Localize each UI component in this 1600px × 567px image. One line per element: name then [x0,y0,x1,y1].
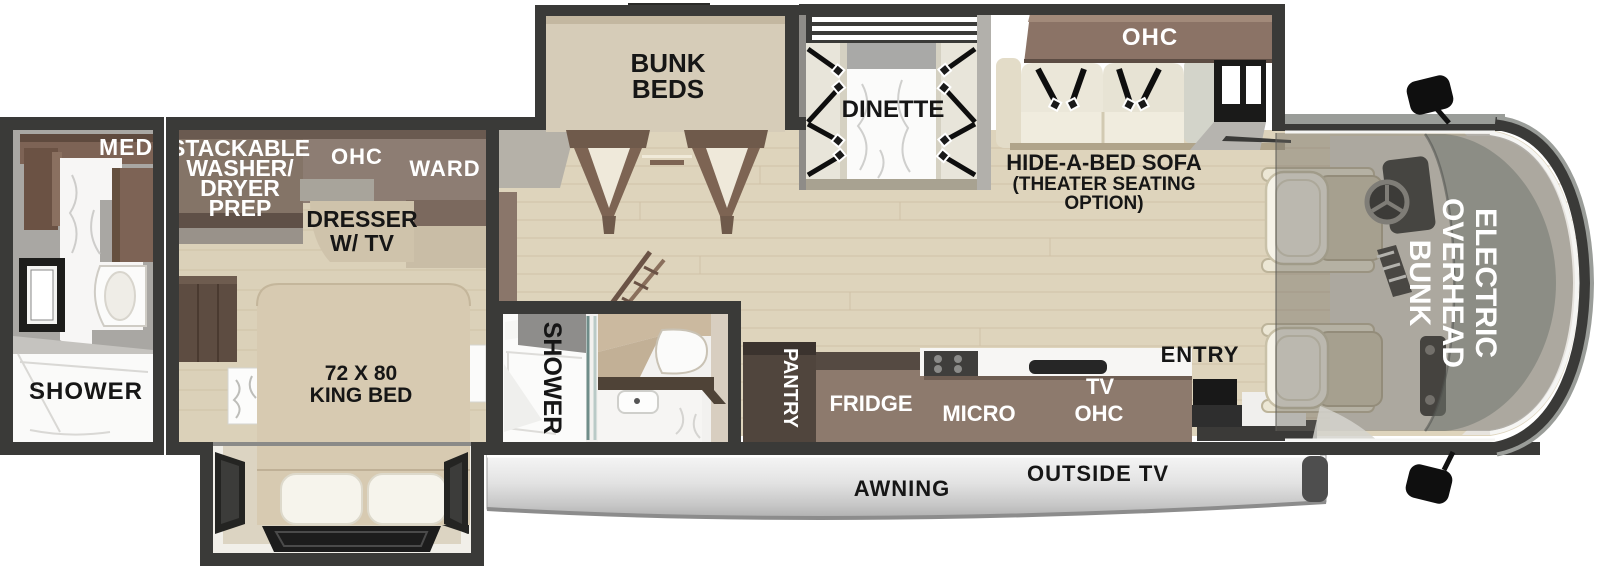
svg-text:PANTRY: PANTRY [779,348,801,429]
svg-text:MED: MED [99,134,153,160]
svg-text:W/ TV: W/ TV [330,230,395,256]
svg-text:OHC: OHC [331,144,383,169]
svg-text:MICRO: MICRO [942,401,1015,426]
svg-text:KING BED: KING BED [310,384,413,407]
svg-text:OHC: OHC [1075,401,1124,426]
svg-text:TV: TV [1086,374,1114,399]
svg-text:HIDE-A-BED SOFA: HIDE-A-BED SOFA [1006,150,1202,175]
svg-text:FRIDGE: FRIDGE [829,391,912,416]
svg-text:BEDS: BEDS [632,74,704,104]
svg-text:72 X 80: 72 X 80 [325,362,397,385]
svg-text:DRESSER: DRESSER [306,206,418,232]
svg-text:WARD: WARD [409,156,480,181]
svg-text:OPTION): OPTION) [1064,193,1143,214]
svg-text:OHC: OHC [1122,24,1178,51]
svg-text:DINETTE: DINETTE [842,96,945,123]
svg-text:ENTRY: ENTRY [1161,342,1240,367]
svg-text:OUTSIDE TV: OUTSIDE TV [1027,461,1169,486]
svg-text:AWNING: AWNING [854,476,950,501]
svg-text:PREP: PREP [209,195,272,221]
svg-text:SHOWER: SHOWER [29,378,143,405]
svg-text:(THEATER SEATING: (THEATER SEATING [1013,174,1196,195]
svg-text:SHOWER: SHOWER [538,322,566,435]
